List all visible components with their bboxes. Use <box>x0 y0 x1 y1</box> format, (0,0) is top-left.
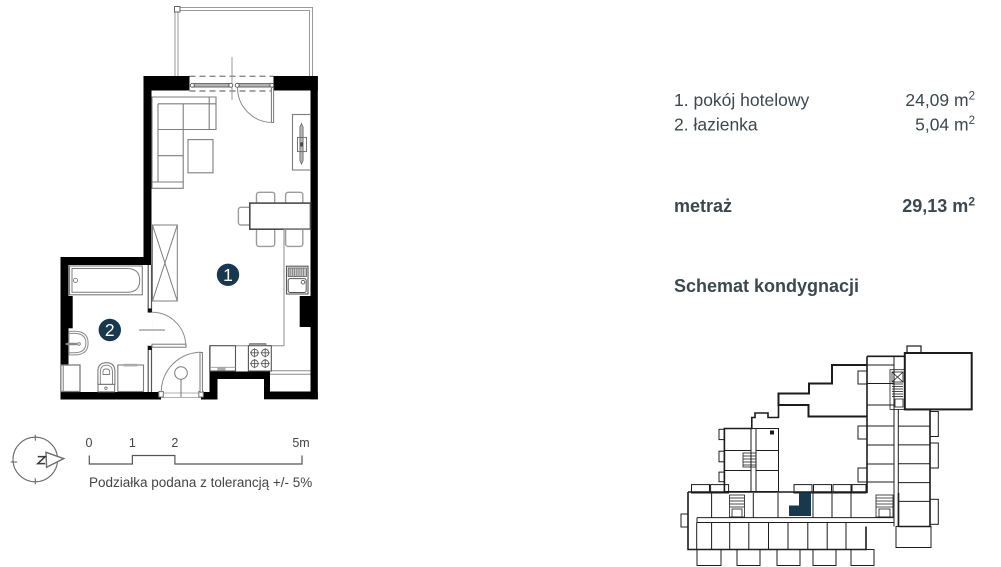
svg-text:metraż: metraż <box>674 196 732 216</box>
svg-text:0: 0 <box>86 436 93 450</box>
svg-text:1. pokój hotelowy: 1. pokój hotelowy <box>674 90 809 110</box>
svg-text:1: 1 <box>223 265 233 285</box>
svg-text:Podziałka podana z tolerancją: Podziałka podana z tolerancją +/- 5% <box>89 475 312 490</box>
svg-text:Schemat kondygnacji: Schemat kondygnacji <box>674 276 859 296</box>
svg-text:5,04 m2: 5,04 m2 <box>915 115 975 135</box>
svg-text:2: 2 <box>105 320 115 340</box>
svg-text:1: 1 <box>129 436 136 450</box>
svg-text:2. łazienka: 2. łazienka <box>674 115 758 135</box>
svg-text:24,09 m2: 24,09 m2 <box>905 90 975 110</box>
svg-text:29,13 m2: 29,13 m2 <box>902 195 975 217</box>
svg-text:2: 2 <box>171 436 178 450</box>
svg-text:5m: 5m <box>292 436 309 450</box>
